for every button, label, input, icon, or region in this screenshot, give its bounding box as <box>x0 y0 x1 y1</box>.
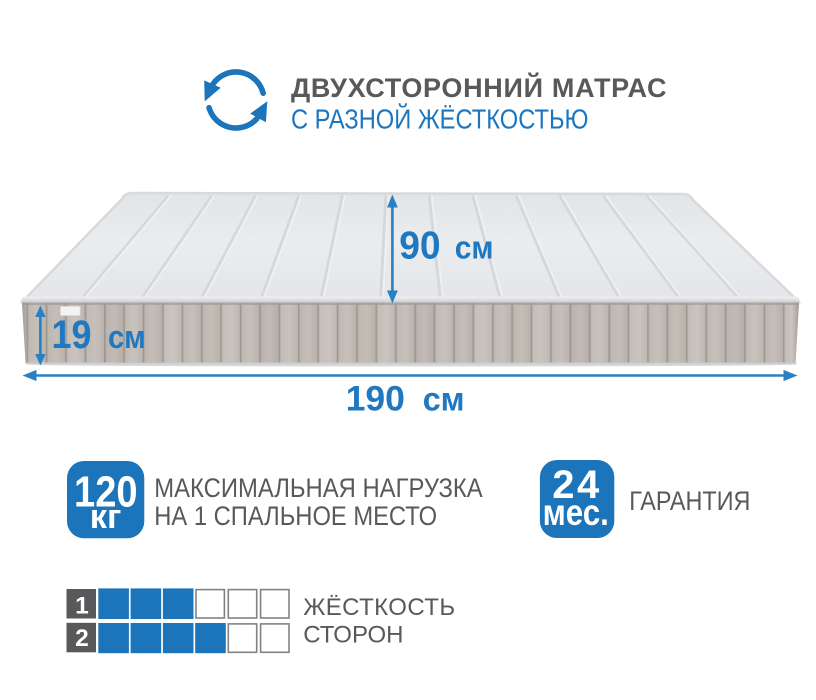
svg-text:кг: кг <box>90 498 122 536</box>
svg-text:см: см <box>423 380 465 417</box>
svg-text:2: 2 <box>75 625 89 652</box>
svg-text:190: 190 <box>346 378 405 418</box>
svg-text:С РАЗНОЙ ЖЁСТКОСТЬЮ: С РАЗНОЙ ЖЁСТКОСТЬЮ <box>291 103 588 135</box>
svg-text:МАКСИМАЛЬНАЯ НАГРУЗКА: МАКСИМАЛЬНАЯ НАГРУЗКА <box>154 474 483 503</box>
svg-text:см: см <box>108 320 146 356</box>
svg-text:ГАРАНТИЯ: ГАРАНТИЯ <box>629 487 750 517</box>
svg-text:90: 90 <box>399 223 440 267</box>
svg-text:НА 1 СПАЛЬНОЕ МЕСТО: НА 1 СПАЛЬНОЕ МЕСТО <box>154 502 437 531</box>
svg-text:см: см <box>455 229 494 265</box>
svg-text:СТОРОН: СТОРОН <box>303 622 403 649</box>
svg-text:ЖЁСТКОСТЬ: ЖЁСТКОСТЬ <box>303 594 455 621</box>
svg-text:1: 1 <box>75 593 89 620</box>
svg-text:19: 19 <box>52 313 92 357</box>
svg-text:ДВУХСТОРОННИЙ МАТРАС: ДВУХСТОРОННИЙ МАТРАС <box>291 72 667 103</box>
svg-text:мес.: мес. <box>543 492 609 533</box>
